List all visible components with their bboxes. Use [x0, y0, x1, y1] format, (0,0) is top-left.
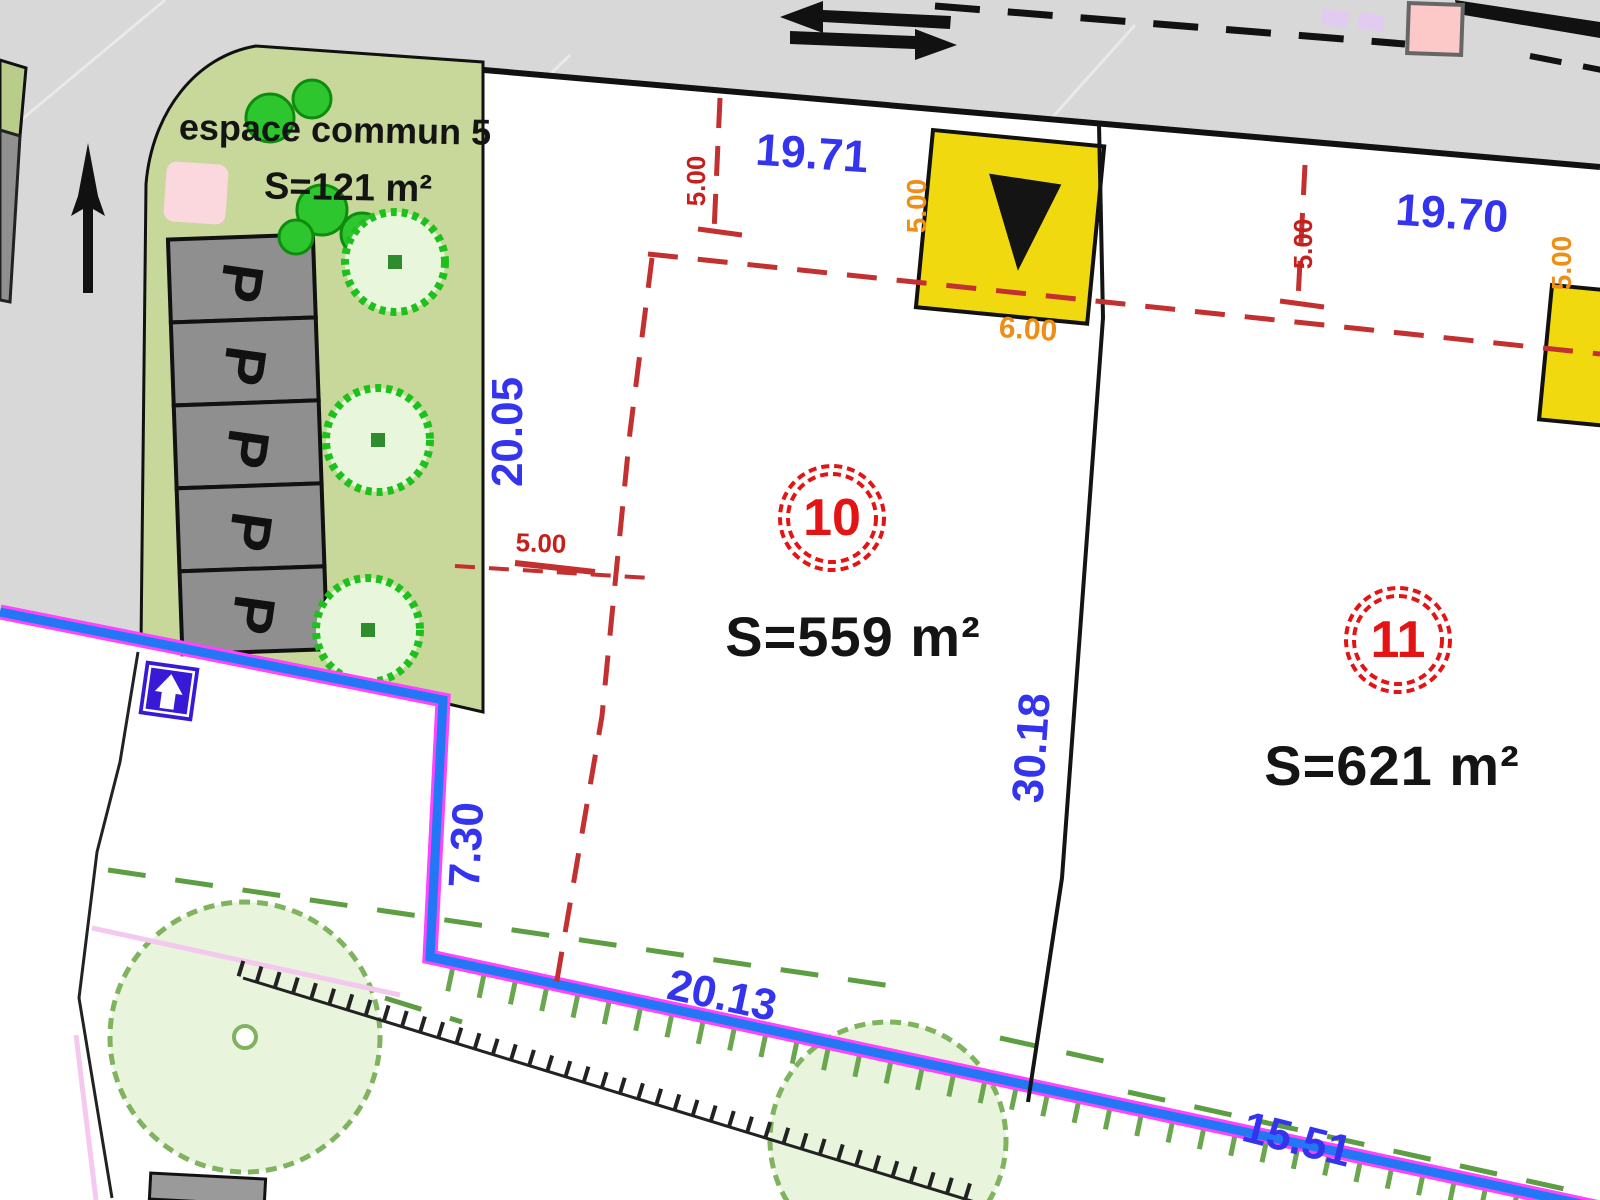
site-plan: P P P P P — [0, 0, 1600, 1200]
access-zone-lot11 — [1539, 285, 1600, 426]
parking-block: P P P P P — [168, 234, 327, 654]
pink-marker — [1407, 3, 1463, 55]
access-zone-lot10 — [916, 130, 1104, 324]
bottom-edge-structure — [149, 1173, 265, 1200]
parcel-circles — [780, 466, 1450, 692]
plan-drawing: P P P P P — [0, 0, 1600, 1200]
pink-surface-patch — [163, 161, 229, 225]
pedestrian-access-icon — [139, 661, 200, 722]
